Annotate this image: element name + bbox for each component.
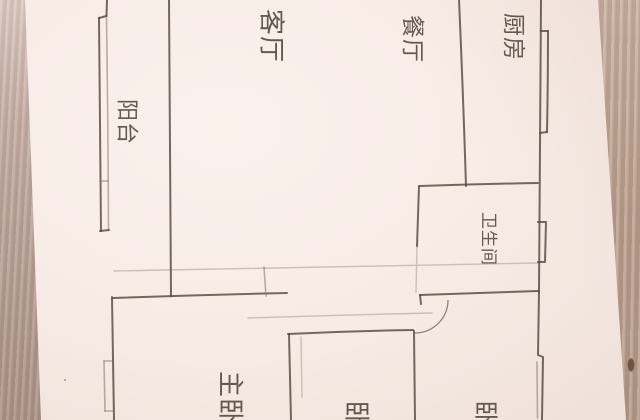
floorplan-photo: 客厅 餐厅 厨房 阳台 卫生间 主卧 卧 卧 — [0, 0, 640, 420]
floorplan-drawing — [0, 0, 640, 420]
construction-lines — [114, 246, 539, 397]
wall-dining-kitchen — [459, 0, 466, 186]
pen-speck — [64, 379, 66, 381]
room-label-balcony: 阳台 — [114, 99, 137, 145]
wall-balcony-outer — [99, 0, 109, 231]
door-swing-arc — [415, 300, 448, 333]
room-label-dining: 餐厅 — [400, 15, 424, 63]
room-label-living: 客厅 — [256, 9, 283, 63]
room-label-master-bedroom: 主卧 — [215, 371, 242, 420]
room-label-bathroom: 卫生间 — [478, 212, 496, 266]
room-label-bedroom-middle: 卧 — [341, 400, 368, 420]
wall-hall-stub — [264, 267, 266, 296]
walls-master-bedroom — [104, 293, 287, 420]
room-label-kitchen: 厨房 — [501, 13, 525, 61]
wall-right-outer — [537, 0, 543, 420]
wall-balcony-inner — [169, 0, 171, 296]
room-label-bedroom-right: 卧 — [472, 401, 497, 420]
